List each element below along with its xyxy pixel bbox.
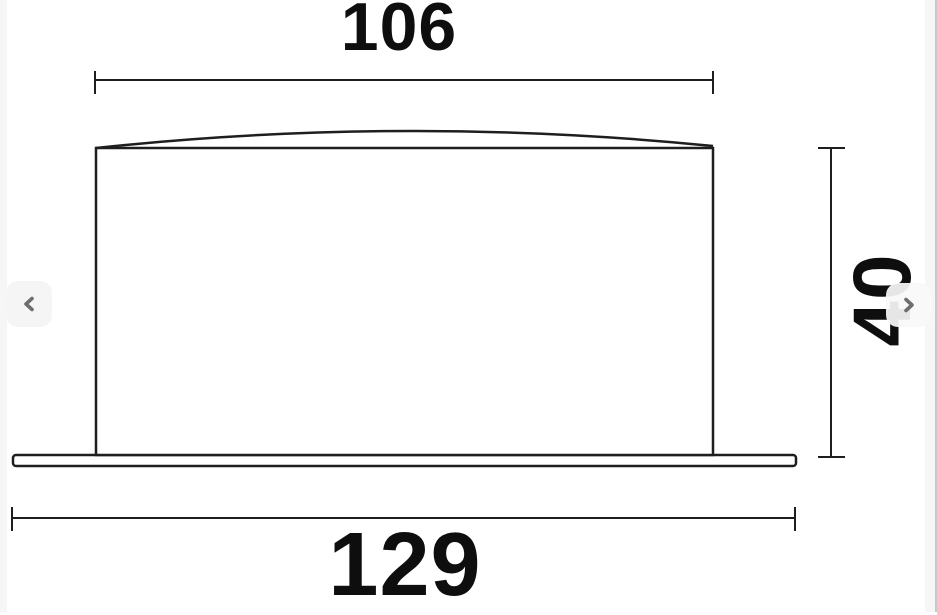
product-image-viewer: 106 129 40 (0, 0, 937, 612)
top-width-dimension-label: 106 (294, 0, 504, 61)
overall-width-dimension-label: 129 (280, 520, 530, 610)
product-flange-outline (13, 455, 796, 466)
product-body-outline (96, 148, 713, 455)
chevron-right-icon (901, 296, 917, 314)
carousel-next-button[interactable] (886, 283, 931, 327)
product-dome-top (96, 131, 713, 148)
carousel-prev-button[interactable] (6, 281, 52, 327)
top-dimension-line (95, 71, 713, 94)
chevron-left-icon (21, 295, 37, 313)
